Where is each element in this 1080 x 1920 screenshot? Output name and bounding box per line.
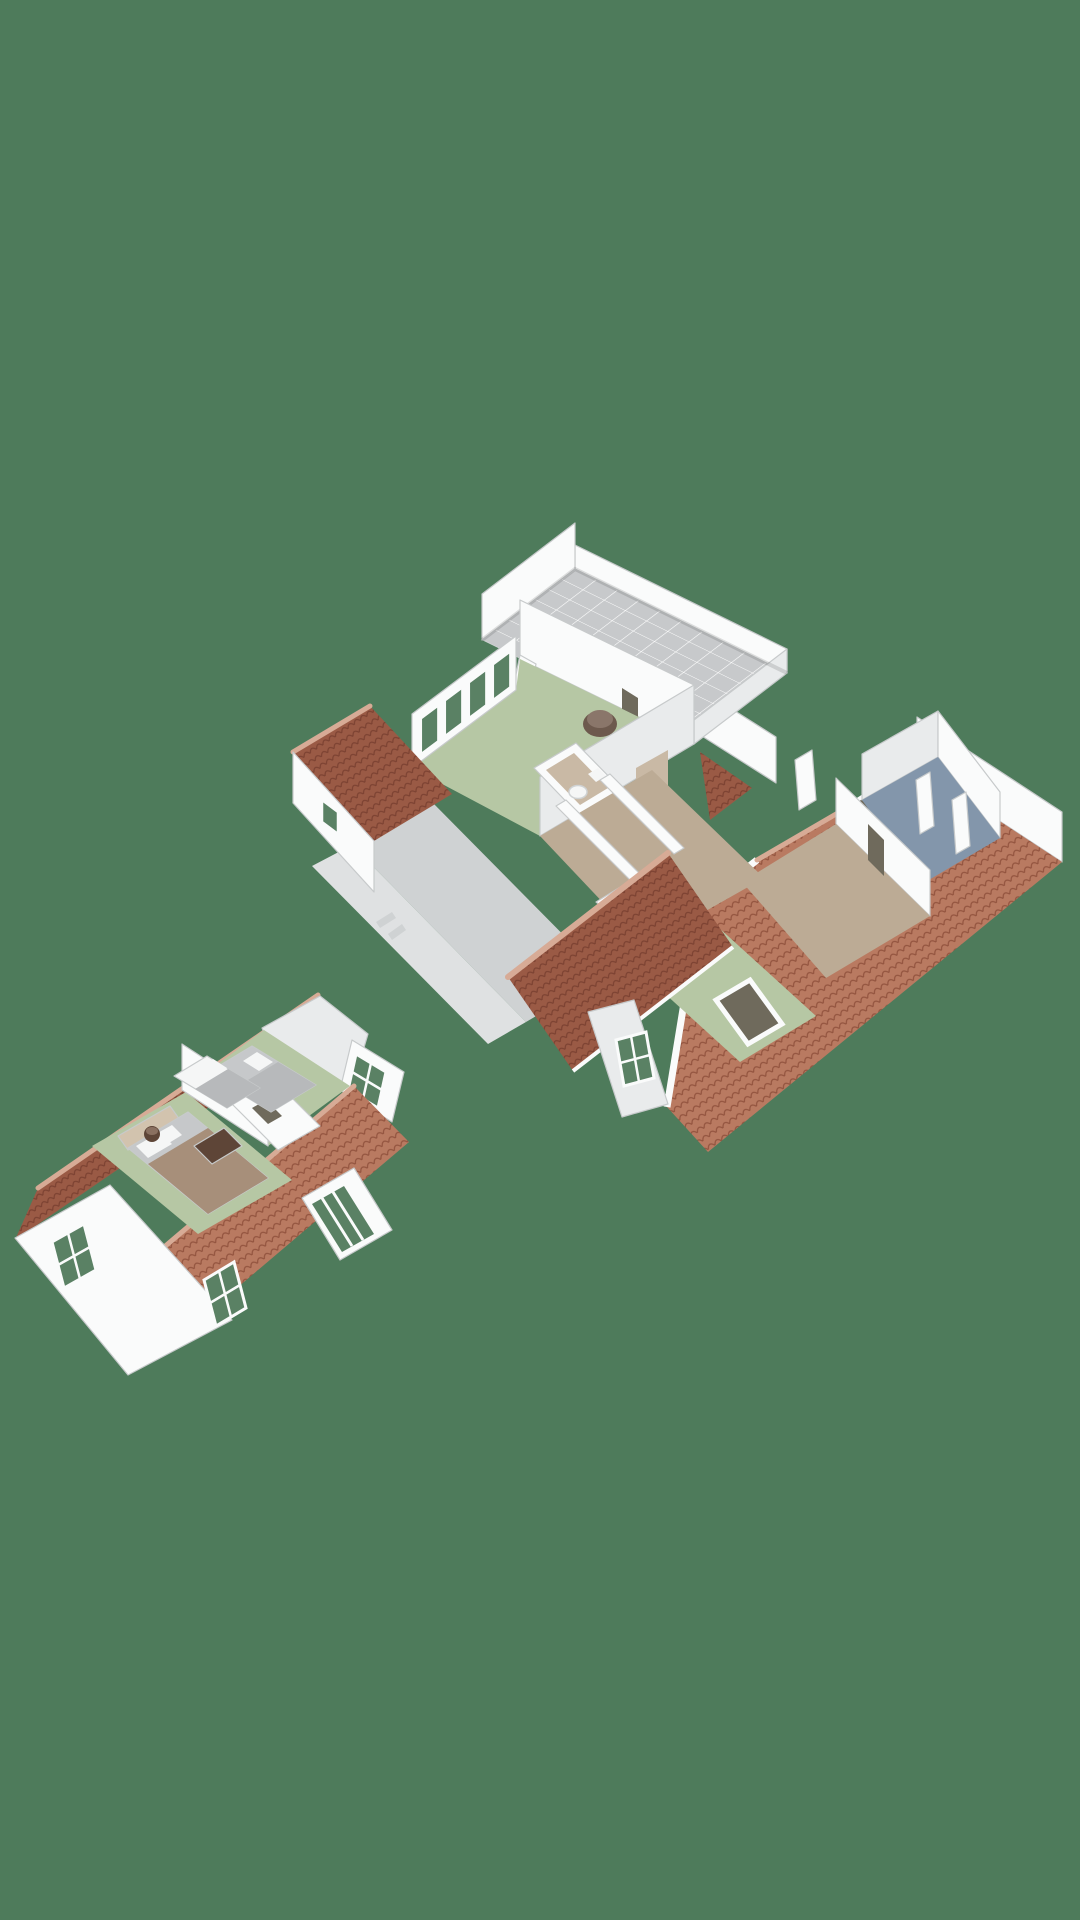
lower-floor-plan[interactable] <box>15 995 409 1375</box>
floorplan-scene <box>0 0 1080 1920</box>
side-stool-top <box>146 1127 158 1135</box>
bean-bag-pouf-top <box>587 710 613 728</box>
floorplan-canvas <box>0 0 1080 1920</box>
toilet <box>569 786 587 799</box>
door-panel <box>795 750 816 810</box>
upper-floor-plan[interactable] <box>293 523 1062 1152</box>
